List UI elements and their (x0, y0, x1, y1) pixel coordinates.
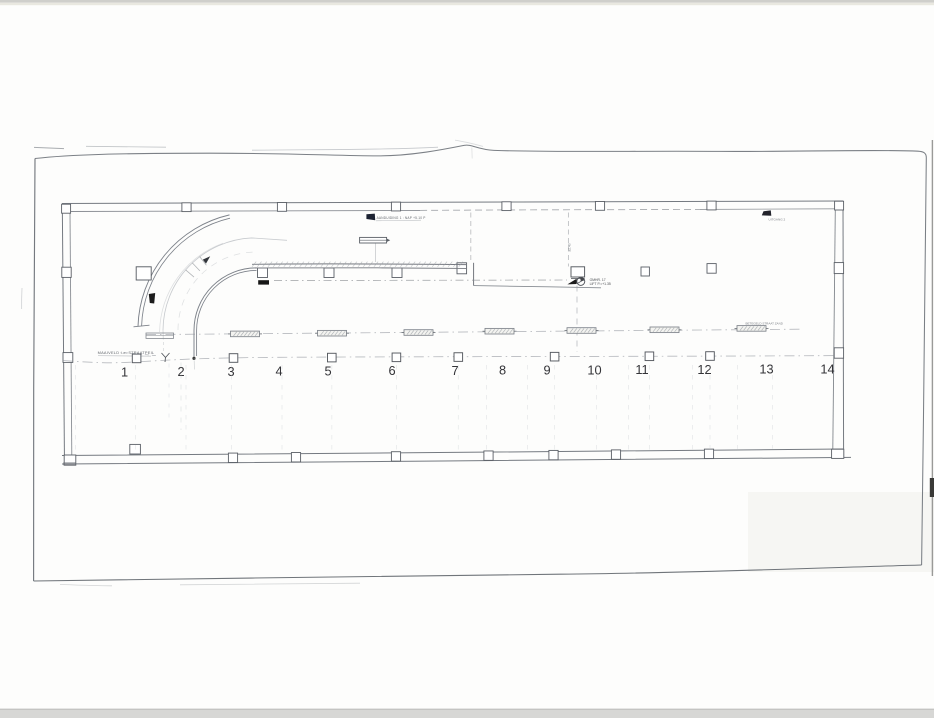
svg-text:10: 10 (587, 362, 601, 377)
svg-text:1: 1 (121, 364, 128, 379)
svg-text:12: 12 (697, 362, 711, 377)
svg-text:3: 3 (227, 364, 234, 379)
svg-text:11: 11 (635, 362, 648, 377)
svg-text:AANDUIDING 1 : NAP +5.10 P: AANDUIDING 1 : NAP +5.10 P (377, 216, 426, 220)
svg-text:MAAIVELD t.o. STRAATPEIL: MAAIVELD t.o. STRAATPEIL (98, 350, 155, 355)
svg-text:UITGANG 2: UITGANG 2 (769, 217, 786, 221)
svg-text:5: 5 (324, 363, 331, 378)
svg-text:LIFT P.=+1.35: LIFT P.=+1.35 (590, 282, 611, 286)
svg-text:14: 14 (820, 361, 834, 376)
svg-text:BETEGELD STRAAT ZAND: BETEGELD STRAAT ZAND (746, 321, 784, 325)
svg-text:4: 4 (275, 364, 282, 379)
svg-text:9: 9 (543, 363, 550, 378)
svg-text:6: 6 (388, 363, 395, 378)
svg-text:±2.40: ±2.40 (567, 243, 571, 252)
svg-text:8: 8 (499, 363, 506, 378)
svg-text:7: 7 (451, 363, 458, 378)
svg-text:13: 13 (759, 362, 773, 377)
